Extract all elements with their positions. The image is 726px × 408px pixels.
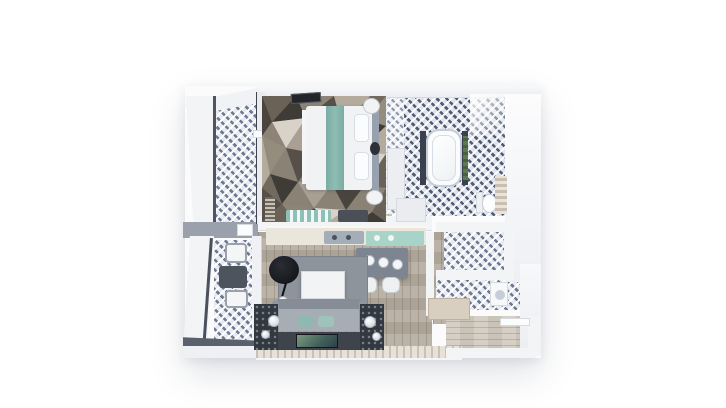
sofa: [276, 299, 362, 333]
bed-pillow: [354, 114, 369, 142]
bed-runner: [326, 106, 344, 190]
balcony-ac-unit: [237, 224, 253, 236]
side-table: [254, 304, 278, 350]
dark-vase: [370, 142, 380, 155]
bathtub: [426, 129, 462, 187]
radiator-shelf: [265, 197, 275, 221]
tv-screen: [296, 334, 338, 348]
closet-top-wall: [436, 222, 512, 232]
sphere-lamp: [364, 316, 376, 328]
teal-glass-panel: [366, 231, 424, 246]
pendant-light: [378, 257, 389, 268]
teal-bench: [286, 210, 331, 222]
entry-bottom-wall: [446, 348, 536, 358]
sofa-teal-pillow: [318, 316, 334, 327]
double-bed: [306, 106, 372, 190]
round-side-table: [363, 98, 380, 114]
coffee-table: [301, 271, 345, 299]
bathroom-window-light: [470, 94, 508, 136]
towel-ladder: [495, 176, 507, 214]
pendant-light: [392, 259, 403, 270]
washer-drum: [495, 290, 505, 300]
dish: [388, 235, 394, 241]
bedroom-balcony-floor: [213, 102, 258, 224]
dresser: [396, 198, 426, 222]
faucet: [332, 235, 337, 240]
bar-stool: [382, 277, 400, 293]
washer: [490, 282, 508, 306]
shoe-bench: [428, 298, 470, 320]
kitchen-counter: [266, 226, 426, 245]
sphere-lamp: [372, 332, 381, 341]
sphere-lamp: [268, 315, 280, 327]
entry-door: [500, 318, 530, 326]
closet-wc-wall: [436, 270, 512, 280]
balcony-armchair: [225, 243, 247, 263]
bathtub-basin: [432, 135, 456, 181]
nightstand: [366, 190, 383, 205]
plant: [463, 136, 468, 180]
floor-lamp-shade: [269, 256, 299, 284]
bedroom-shelf-dark: [338, 210, 368, 222]
faucet: [346, 235, 351, 240]
balcony-armchair: [225, 290, 248, 308]
bed-foot-bench: [302, 110, 306, 184]
bed-pillow: [354, 152, 369, 180]
bedroom-tv-panel: [291, 92, 322, 104]
sofa-teal-pillow: [298, 316, 314, 327]
tv-console: [278, 332, 360, 350]
kitchen-sink: [324, 231, 364, 244]
closet-floor: [444, 228, 506, 270]
sphere-lamp: [261, 330, 270, 339]
living-balcony-bottom-rail: [183, 346, 260, 358]
balcony-table: [219, 266, 247, 288]
floor-plan-render: [0, 0, 726, 408]
dish: [374, 235, 380, 241]
apartment: [183, 84, 543, 360]
